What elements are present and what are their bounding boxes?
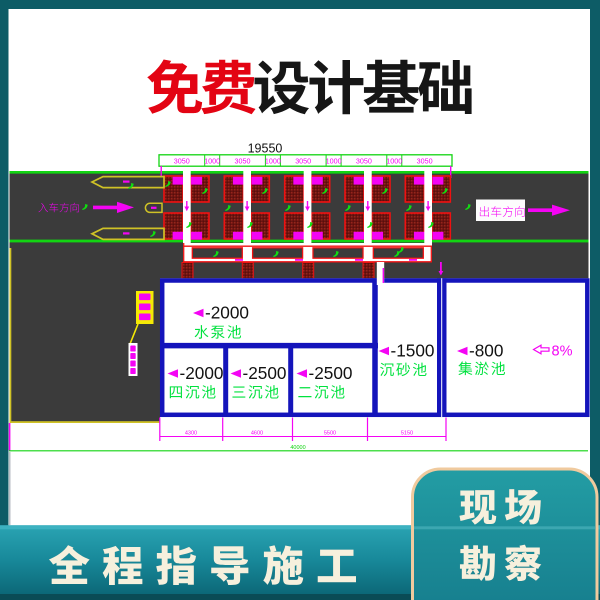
svg-text:-2500: -2500 xyxy=(243,363,287,383)
svg-text:3050: 3050 xyxy=(417,156,433,165)
svg-text:4300: 4300 xyxy=(185,431,197,437)
svg-text:-1500: -1500 xyxy=(391,341,435,361)
svg-text:1000: 1000 xyxy=(386,156,402,165)
svg-text:-2500: -2500 xyxy=(309,363,353,383)
svg-text:1000: 1000 xyxy=(265,156,281,165)
svg-text:3050: 3050 xyxy=(295,156,311,165)
svg-text:-2000: -2000 xyxy=(180,363,224,383)
svg-text:40000: 40000 xyxy=(290,445,305,451)
svg-text:19550: 19550 xyxy=(248,142,283,156)
svg-text:5500: 5500 xyxy=(324,431,336,437)
svg-text:3050: 3050 xyxy=(356,156,372,165)
svg-text:4600: 4600 xyxy=(251,431,263,437)
svg-text:-2000: -2000 xyxy=(205,303,249,323)
svg-text:3050: 3050 xyxy=(174,156,190,165)
svg-text:5150: 5150 xyxy=(401,431,413,437)
svg-text:1000: 1000 xyxy=(204,156,220,165)
svg-text:8%: 8% xyxy=(552,344,573,360)
svg-text:1000: 1000 xyxy=(326,156,342,165)
svg-text:3050: 3050 xyxy=(235,156,251,165)
svg-text:-800: -800 xyxy=(469,341,503,361)
